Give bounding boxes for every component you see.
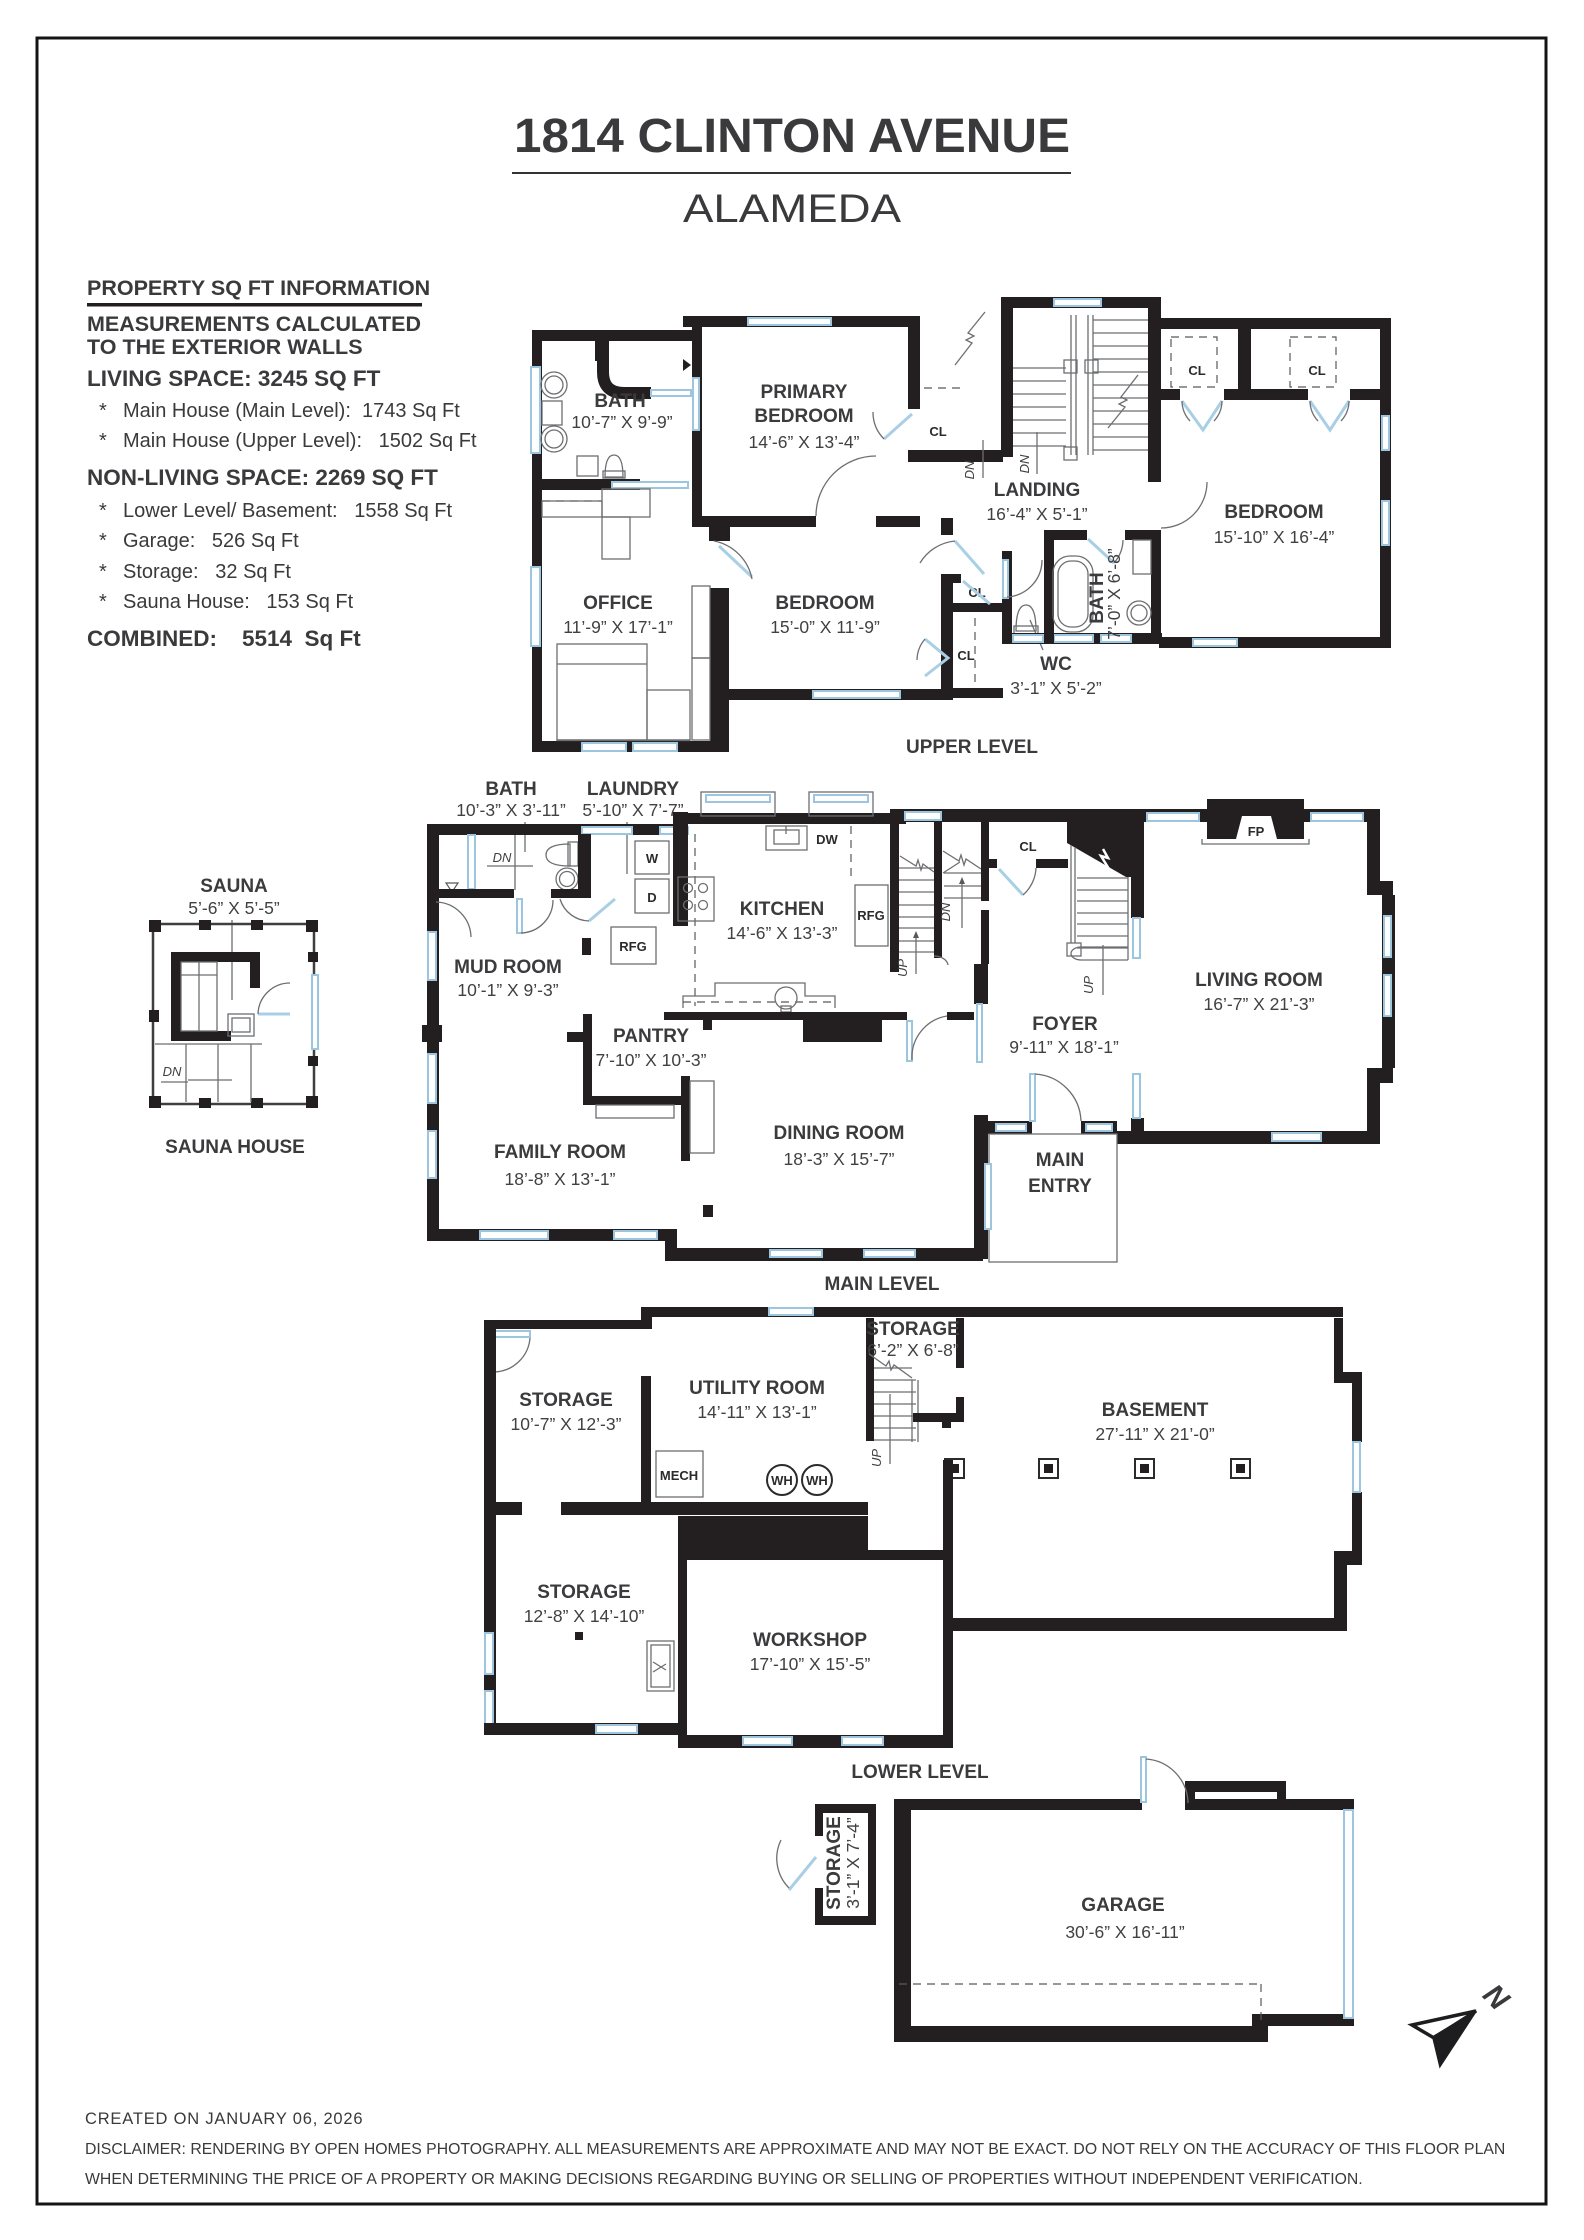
svg-text:18’-3” X 15’-7”: 18’-3” X 15’-7” <box>784 1149 895 1169</box>
svg-text:SAUNA: SAUNA <box>200 876 268 897</box>
svg-text:30’-6” X 16’-11”: 30’-6” X 16’-11” <box>1065 1922 1184 1942</box>
svg-text:*: * <box>99 561 107 583</box>
svg-text:PANTRY: PANTRY <box>613 1026 689 1047</box>
svg-text:18’-8” X 13’-1”: 18’-8” X 13’-1” <box>505 1169 616 1189</box>
svg-text:RFG: RFG <box>619 939 646 954</box>
svg-text:STORAGE: STORAGE <box>519 1390 613 1411</box>
svg-text:*: * <box>99 500 107 522</box>
svg-text:WH: WH <box>806 1473 828 1488</box>
svg-text:LAUNDRY: LAUNDRY <box>587 779 680 800</box>
svg-text:5’-6” X 5’-5”: 5’-6” X 5’-5” <box>188 898 280 918</box>
svg-text:RFG: RFG <box>857 908 884 923</box>
svg-text:LIVING SPACE: 3245 SQ FT: LIVING SPACE: 3245 SQ FT <box>87 366 381 391</box>
svg-text:BEDROOM: BEDROOM <box>1224 502 1323 523</box>
svg-text:14’-11” X 13’-1”: 14’-11” X 13’-1” <box>697 1402 816 1422</box>
svg-text:DN: DN <box>962 460 977 479</box>
svg-text:10’-1” X 9’-3”: 10’-1” X 9’-3” <box>457 980 558 1000</box>
svg-text:ENTRY: ENTRY <box>1028 1176 1092 1197</box>
svg-text:LANDING: LANDING <box>994 480 1081 501</box>
svg-text:LIVING ROOM: LIVING ROOM <box>1195 970 1323 991</box>
svg-text:CL: CL <box>929 424 946 439</box>
svg-text:D: D <box>647 890 656 905</box>
svg-text:17’-10” X 15’-5”: 17’-10” X 15’-5” <box>750 1654 871 1674</box>
svg-text:OFFICE: OFFICE <box>583 593 653 614</box>
svg-text:CL: CL <box>1308 363 1325 378</box>
svg-text:Main House (Main Level): 1743: Main House (Main Level): 1743 Sq Ft <box>123 400 460 422</box>
svg-text:STORAGE: STORAGE <box>824 1816 845 1910</box>
svg-text:*: * <box>99 400 107 422</box>
svg-text:FOYER: FOYER <box>1032 1014 1098 1035</box>
svg-text:WC: WC <box>1040 654 1072 675</box>
svg-text:BATH: BATH <box>594 391 645 412</box>
svg-text:NON-LIVING SPACE: 2269 SQ FT: NON-LIVING SPACE: 2269 SQ FT <box>87 465 438 490</box>
svg-text:*: * <box>99 430 107 452</box>
svg-text:W: W <box>646 851 659 866</box>
svg-text:BASEMENT: BASEMENT <box>1102 1400 1209 1421</box>
svg-text:MECH: MECH <box>660 1468 698 1483</box>
svg-text:14’-6” X 13’-3”: 14’-6” X 13’-3” <box>727 923 838 943</box>
svg-text:11’-9” X 17’-1”: 11’-9” X 17’-1” <box>563 617 673 637</box>
svg-text:TO THE EXTERIOR WALLS: TO THE EXTERIOR WALLS <box>87 335 363 359</box>
svg-text:7’-10” X 10’-3”: 7’-10” X 10’-3” <box>596 1050 707 1070</box>
svg-text:15’-10” X 16’-4”: 15’-10” X 16’-4” <box>1214 527 1335 547</box>
svg-text:STORAGE: STORAGE <box>537 1582 631 1603</box>
svg-text:GARAGE: GARAGE <box>1081 1895 1164 1916</box>
svg-text:LOWER LEVEL: LOWER LEVEL <box>851 1762 989 1783</box>
svg-text:12’-8” X 14’-10”: 12’-8” X 14’-10” <box>524 1606 645 1626</box>
svg-text:UP: UP <box>869 1449 884 1467</box>
svg-text:MUD ROOM: MUD ROOM <box>454 957 562 978</box>
svg-text:UP: UP <box>895 959 910 977</box>
svg-text:16’-7” X 21’-3”: 16’-7” X 21’-3” <box>1204 994 1315 1014</box>
svg-text:BEDROOM: BEDROOM <box>754 406 853 427</box>
svg-text:BATH: BATH <box>485 779 536 800</box>
svg-text:ALAMEDA: ALAMEDA <box>683 187 901 231</box>
svg-text:27’-11” X 21’-0”: 27’-11” X 21’-0” <box>1095 1424 1214 1444</box>
svg-text:9’-11” X 18’-1”: 9’-11” X 18’-1” <box>1009 1037 1119 1057</box>
svg-text:DINING ROOM: DINING ROOM <box>774 1123 905 1144</box>
svg-text:MAIN: MAIN <box>1036 1150 1085 1171</box>
svg-text:3’-1” X 5’-2”: 3’-1” X 5’-2” <box>1010 678 1102 698</box>
svg-text:5’-10” X 7’-7”: 5’-10” X 7’-7” <box>582 800 683 820</box>
svg-text:DN: DN <box>493 850 512 865</box>
svg-text:WHEN DETERMINING THE PRICE OF: WHEN DETERMINING THE PRICE OF A PROPERTY… <box>85 2171 1363 2188</box>
svg-text:FAMILY ROOM: FAMILY ROOM <box>494 1142 626 1163</box>
svg-text:6’-2” X 6’-8”: 6’-2” X 6’-8” <box>867 1340 959 1360</box>
svg-text:10’-7” X 12’-3”: 10’-7” X 12’-3” <box>511 1414 622 1434</box>
svg-text:7’-0” X 6’-8”: 7’-0” X 6’-8” <box>1104 548 1124 640</box>
svg-text:CREATED ON JANUARY 06, 2026: CREATED ON JANUARY 06, 2026 <box>85 2110 363 2128</box>
svg-text:16’-4” X 5’-1”: 16’-4” X 5’-1” <box>986 504 1087 524</box>
svg-text:DW: DW <box>816 832 838 847</box>
svg-text:DN: DN <box>1017 454 1032 473</box>
svg-text:WH: WH <box>771 1473 793 1488</box>
svg-text:Storage: 32 Sq Ft: Storage: 32 Sq Ft <box>123 561 291 583</box>
svg-text:15’-0” X 11’-9”: 15’-0” X 11’-9” <box>770 617 880 637</box>
svg-text:Lower Level/ Basement: 1558: Lower Level/ Basement: 1558 Sq Ft <box>123 500 453 522</box>
svg-text:PROPERTY SQ FT INFORMATION: PROPERTY SQ FT INFORMATION <box>87 276 430 300</box>
svg-text:STORAGE: STORAGE <box>866 1319 960 1340</box>
svg-text:MAIN LEVEL: MAIN LEVEL <box>824 1274 939 1295</box>
svg-text:3’-1” X 7’-4”: 3’-1” X 7’-4” <box>843 1817 863 1909</box>
svg-text:CL: CL <box>1188 363 1205 378</box>
svg-text:10’-3” X 3’-11”: 10’-3” X 3’-11” <box>456 800 566 820</box>
svg-text:UTILITY ROOM: UTILITY ROOM <box>689 1378 825 1399</box>
svg-text:DN: DN <box>938 902 953 921</box>
svg-text:UPPER LEVEL: UPPER LEVEL <box>906 737 1038 758</box>
svg-text:DISCLAIMER: RENDERING BY OPEN: DISCLAIMER: RENDERING BY OPEN HOMES PHOT… <box>85 2141 1505 2158</box>
svg-text:DN: DN <box>163 1064 182 1079</box>
svg-text:CL: CL <box>957 648 974 663</box>
svg-text:WORKSHOP: WORKSHOP <box>753 1630 867 1651</box>
svg-text:PRIMARY: PRIMARY <box>761 382 848 403</box>
svg-text:*: * <box>99 591 107 613</box>
svg-text:1814 CLINTON AVENUE: 1814 CLINTON AVENUE <box>514 110 1070 163</box>
svg-text:14’-6” X 13’-4”: 14’-6” X 13’-4” <box>749 432 860 452</box>
svg-text:SAUNA HOUSE: SAUNA HOUSE <box>165 1137 305 1158</box>
svg-text:KITCHEN: KITCHEN <box>740 899 824 920</box>
svg-text:CL: CL <box>1019 839 1036 854</box>
svg-text:Sauna House: 153 Sq Ft: Sauna House: 153 Sq Ft <box>123 591 354 613</box>
svg-text:BEDROOM: BEDROOM <box>775 593 874 614</box>
svg-text:UP: UP <box>1081 976 1096 994</box>
svg-text:*: * <box>99 530 107 552</box>
svg-text:FP: FP <box>1248 824 1265 839</box>
svg-text:COMBINED: 5514 Sq Ft: COMBINED: 5514 Sq Ft <box>87 626 361 651</box>
svg-text:Main House (Upper Level): 15: Main House (Upper Level): 1502 Sq Ft <box>123 430 477 452</box>
svg-text:MEASUREMENTS CALCULATED: MEASUREMENTS CALCULATED <box>87 312 421 336</box>
svg-text:10’-7” X 9’-9”: 10’-7” X 9’-9” <box>571 412 672 432</box>
svg-text:Garage: 526 Sq Ft: Garage: 526 Sq Ft <box>123 530 299 552</box>
